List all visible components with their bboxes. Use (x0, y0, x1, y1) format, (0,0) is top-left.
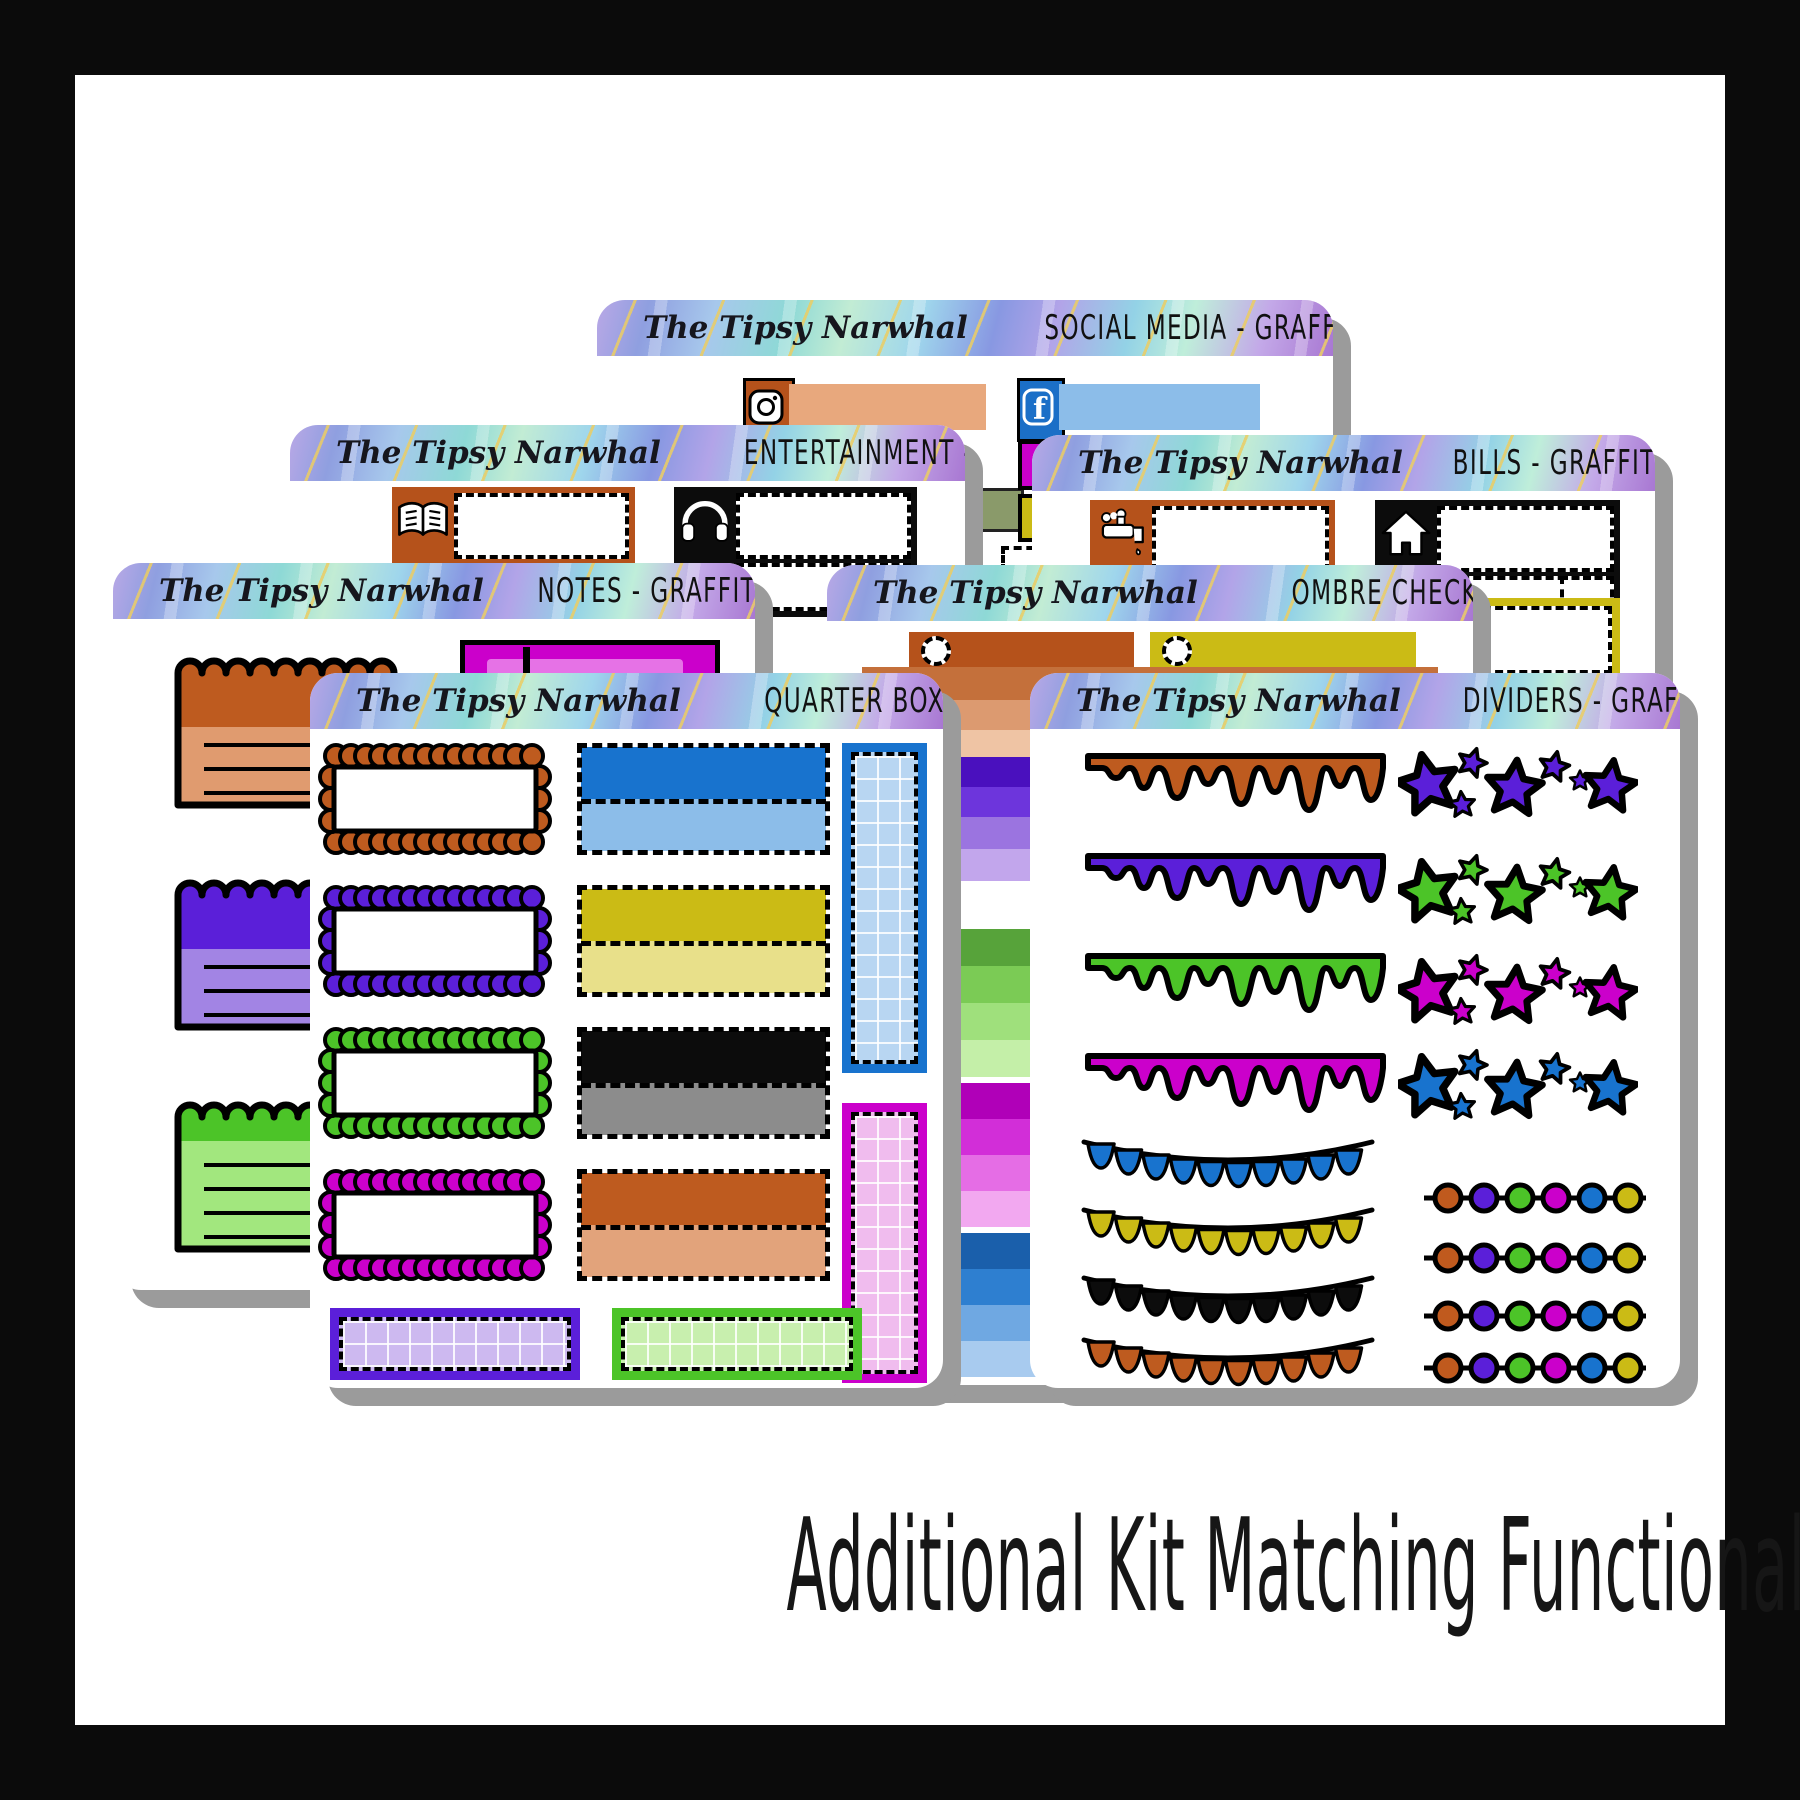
sheet-title: ENTERTAINMENT - GRAFFITI (744, 433, 965, 473)
scallop-frame-purple (318, 885, 552, 997)
sheet-title: QUARTER BOXES - GRAFFITI (764, 681, 943, 721)
brand-name: The Tipsy Narwhal (1032, 445, 1403, 481)
half-box-black (577, 1027, 830, 1139)
write-area (1437, 506, 1614, 572)
facebook-icon: f (1020, 381, 1056, 433)
sheet-header-marble: The Tipsy Narwhal BILLS - GRAFFITI (1032, 435, 1655, 491)
bead-string (1420, 1348, 1650, 1388)
write-area (736, 493, 911, 559)
checklist-bar-yellow (1150, 632, 1416, 668)
sheet-header-marble: The Tipsy Narwhal SOCIAL MEDIA - GRAFFIT… (597, 300, 1333, 356)
brand-name: The Tipsy Narwhal (827, 575, 1198, 611)
brand-name: The Tipsy Narwhal (290, 435, 661, 471)
partial-sticker-green (968, 488, 1024, 532)
checkbox-circle (921, 636, 951, 666)
sheet-title: OMBRE CHECKLISTS - GRAFFITI (1291, 573, 1473, 613)
caption-text: Additional Kit Matching Functionals Avai… (787, 1492, 1800, 1641)
sheet-header-marble: The Tipsy Narwhal DIVIDERS - GRAFFITI (1030, 673, 1680, 729)
star-cluster-blue (1398, 1045, 1638, 1121)
paint-drip-magenta (1078, 1048, 1393, 1118)
house-icon (1377, 504, 1435, 562)
star-cluster-purple (1398, 743, 1638, 819)
star-cluster-magenta (1398, 950, 1638, 1026)
facebook-write-bar (1059, 384, 1260, 430)
bead-string (1420, 1178, 1650, 1218)
sheet-title: NOTES - GRAFFITI (537, 571, 755, 611)
scallop-frame-magenta (318, 1169, 552, 1281)
scallop-frame-green (318, 1027, 552, 1139)
sheet-header-marble: The Tipsy Narwhal OMBRE CHECKLISTS - GRA… (827, 565, 1473, 621)
half-box-orange (577, 1169, 830, 1281)
write-area (454, 493, 629, 559)
half-box-yellow (577, 885, 830, 997)
brand-name: The Tipsy Narwhal (597, 310, 968, 346)
star-cluster-green (1398, 850, 1638, 926)
sheet-quarter-boxes: The Tipsy Narwhal QUARTER BOXES - GRAFFI… (310, 673, 943, 1388)
bead-string (1420, 1238, 1650, 1278)
sheet-header-marble: The Tipsy Narwhal NOTES - GRAFFITI (113, 563, 755, 619)
facebook-sticker-icon-box: f (1017, 378, 1065, 442)
write-area (1152, 506, 1329, 572)
half-box-blue (577, 743, 830, 855)
write-area (1483, 606, 1612, 674)
grid-column-blue (842, 743, 927, 1073)
brand-name: The Tipsy Narwhal (310, 683, 681, 719)
headphones-icon (676, 491, 734, 549)
sheet-title: DIVIDERS - GRAFFITI (1463, 681, 1680, 721)
grid-box-green (612, 1308, 862, 1380)
bunting-black (1078, 1268, 1378, 1334)
faucet-icon (1092, 504, 1150, 562)
bottom-caption: Additional Kit Matching Functionals Avai… (0, 1492, 1800, 1641)
sheet-title: SOCIAL MEDIA - GRAFFITI (1044, 308, 1333, 348)
instagram-write-bar (789, 384, 986, 430)
checkbox-circle (1162, 636, 1192, 666)
paint-drip-purple (1078, 848, 1393, 918)
bunting-orange (1078, 1330, 1378, 1396)
product-image: The Tipsy Narwhal SOCIAL MEDIA - GRAFFIT… (0, 0, 1800, 1800)
book-icon (394, 491, 452, 549)
brand-name: The Tipsy Narwhal (113, 573, 484, 609)
bunting-blue (1078, 1132, 1378, 1198)
sheet-dividers: The Tipsy Narwhal DIVIDERS - GRAFFITI (1030, 673, 1680, 1388)
bead-string (1420, 1296, 1650, 1336)
paint-drip-green (1078, 948, 1393, 1018)
checklist-bar-orange (909, 632, 1134, 668)
sheet-header-marble: The Tipsy Narwhal ENTERTAINMENT - GRAFFI… (290, 425, 965, 481)
brand-name: The Tipsy Narwhal (1030, 683, 1401, 719)
sheet-title: BILLS - GRAFFITI (1452, 443, 1655, 483)
svg-text:f: f (1033, 392, 1048, 427)
paint-drip-orange (1078, 748, 1393, 818)
grid-box-purple (330, 1308, 580, 1380)
scallop-frame-orange (318, 743, 552, 855)
sheet-header-marble: The Tipsy Narwhal QUARTER BOXES - GRAFFI… (310, 673, 943, 729)
bunting-yellow (1078, 1200, 1378, 1266)
